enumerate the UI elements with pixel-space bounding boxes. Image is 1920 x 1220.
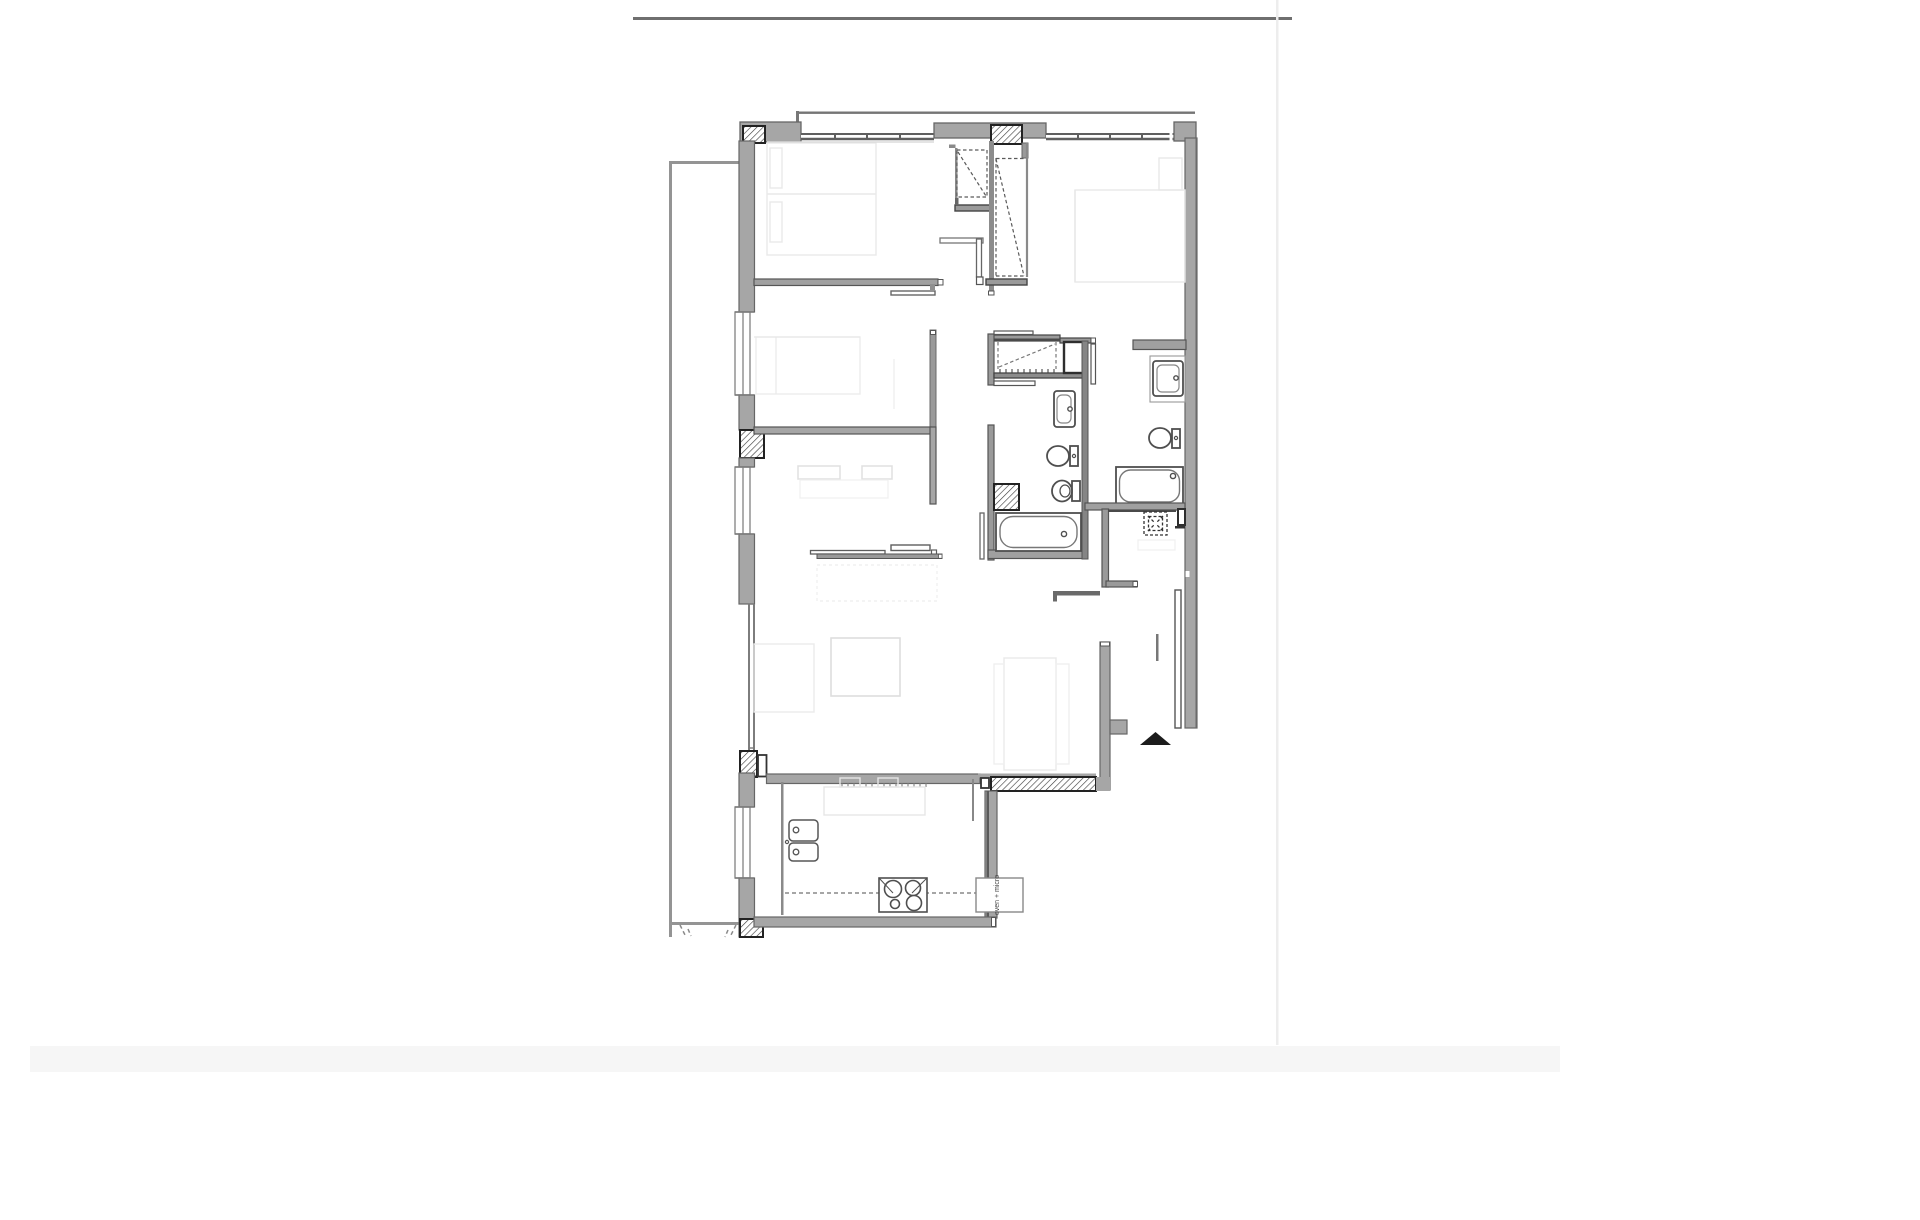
svg-text:oven + micro: oven + micro <box>994 875 1001 915</box>
